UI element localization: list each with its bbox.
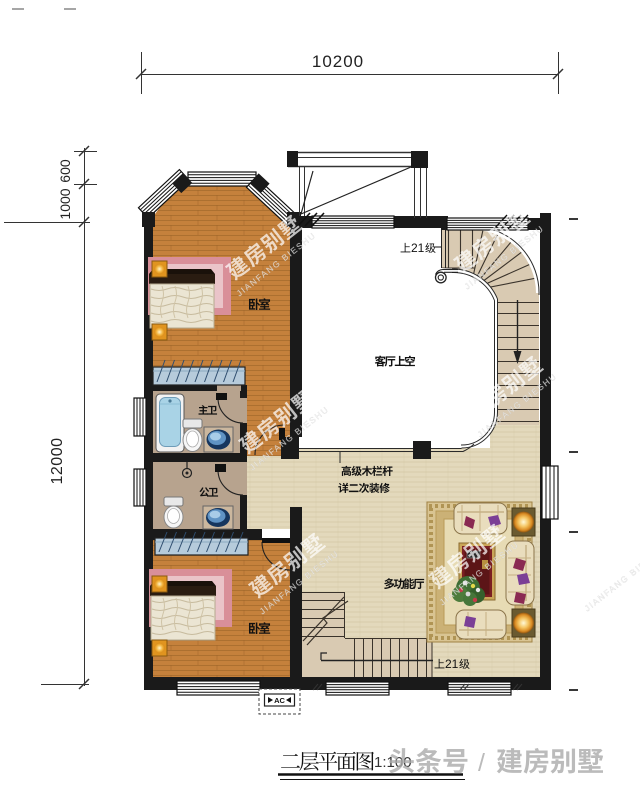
- svg-text:AC: AC: [274, 696, 285, 705]
- svg-text:21: 21: [445, 657, 459, 671]
- svg-text:/: /: [478, 749, 485, 777]
- svg-text:10200: 10200: [312, 52, 364, 71]
- svg-text:12000: 12000: [49, 438, 66, 485]
- svg-text:1000: 1000: [57, 188, 73, 219]
- svg-text:21: 21: [411, 241, 425, 255]
- svg-text:600: 600: [57, 159, 73, 183]
